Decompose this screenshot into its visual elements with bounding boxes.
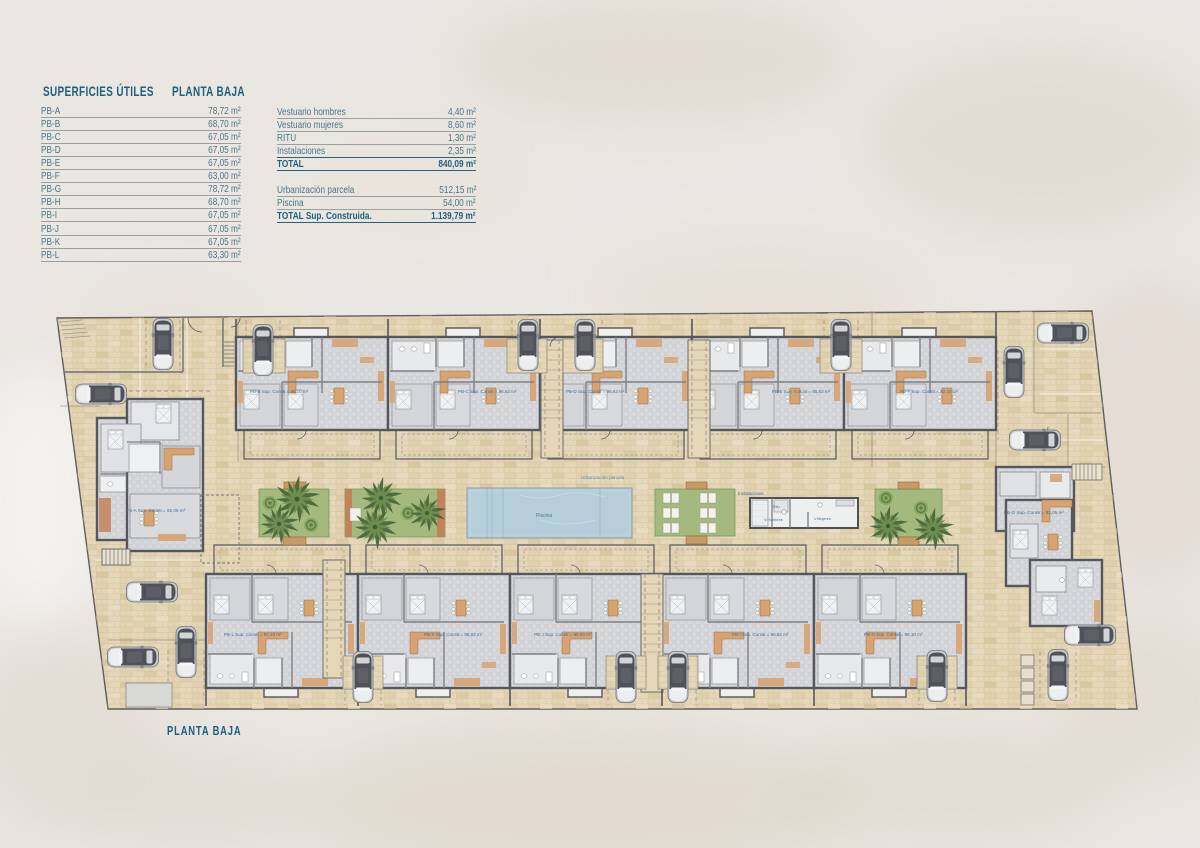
svg-text:Urbanización parcela: Urbanización parcela (581, 475, 625, 480)
svg-text:PB-G Sup. Constr.= 92,05 m²: PB-G Sup. Constr.= 92,05 m² (1004, 510, 1064, 515)
svg-text:PB-B Sup. Constr.= 98,10 m²: PB-B Sup. Constr.= 98,10 m² (250, 389, 309, 394)
svg-text:Ritu: Ritu (773, 505, 780, 509)
svg-text:PB-H Sup. Constr.= 98,10 m²: PB-H Sup. Constr.= 98,10 m² (864, 632, 923, 637)
svg-text:PB-D Sup. Constr.= 95,63 m²: PB-D Sup. Constr.= 95,63 m² (566, 389, 625, 394)
svg-text:PB-J Sup. Constr.= 95,63 m²: PB-J Sup. Constr.= 95,63 m² (534, 632, 592, 637)
svg-text:V.Hombres: V.Hombres (764, 518, 783, 522)
svg-text:Instalaciones: Instalaciones (738, 491, 764, 496)
svg-text:Piscina: Piscina (536, 513, 552, 519)
svg-text:PB-I Sup. Constr.= 95,63 m²: PB-I Sup. Constr.= 95,63 m² (732, 632, 789, 637)
svg-text:V.Mujeres: V.Mujeres (814, 517, 831, 521)
svg-text:PB-C Sup. Constr.= 95,63 m²: PB-C Sup. Constr.= 95,63 m² (458, 389, 517, 394)
svg-text:PB-K Sup. Constr.= 95,63 m²: PB-K Sup. Constr.= 95,63 m² (424, 632, 483, 637)
svg-text:PB-F Sup. Constr.= 82,33 m²: PB-F Sup. Constr.= 82,33 m² (900, 389, 958, 394)
svg-text:PB-E Sup. Constr.= 95,63 m²: PB-E Sup. Constr.= 95,63 m² (772, 389, 831, 394)
svg-text:PB-A Sup. Constr.= 92,05 m²: PB-A Sup. Constr.= 92,05 m² (126, 508, 186, 513)
svg-text:PB-L Sup. Constr.= 82,33 m²: PB-L Sup. Constr.= 82,33 m² (224, 632, 282, 637)
